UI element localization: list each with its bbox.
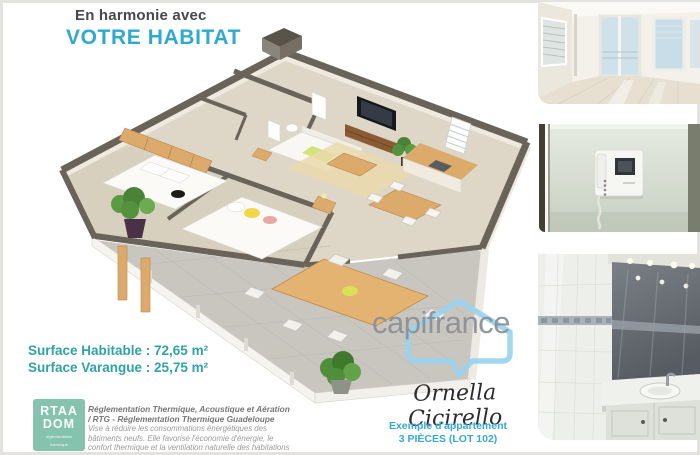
regulation-title2: / RTG - Réglementation Thermique Guadelo… bbox=[88, 414, 324, 424]
watermark-text: capifrance bbox=[372, 305, 510, 340]
tagline-line1: En harmonie avec bbox=[75, 7, 207, 24]
tagline-line2: VOTRE HABITAT bbox=[66, 26, 241, 50]
photo-bathroom-vanity bbox=[538, 254, 700, 440]
caption-line1: Exemple d'appartement bbox=[380, 420, 516, 433]
surface-info: Surface Habitable : 72,65 m² Surface Var… bbox=[28, 342, 208, 376]
apartment-caption: Exemple d'appartement 3 PIÈCES (LOT 102) bbox=[380, 420, 516, 446]
capifrance-logo: capifrance bbox=[360, 290, 560, 385]
rtaa-dom-badge: RTAA DOM réglementation thermique bbox=[33, 399, 85, 451]
regulation-body1: Vise à réduire les consommations énergét… bbox=[88, 424, 324, 434]
regulation-body3: confort thermique et la ventilation natu… bbox=[88, 443, 324, 453]
badge-line2: DOM bbox=[43, 418, 75, 431]
regulation-body2: bâtiments neufs. Elle favorise l'économi… bbox=[88, 434, 324, 444]
photo-video-intercom bbox=[539, 124, 700, 232]
regulation-title1: Réglementation Thermique, Acoustique et … bbox=[88, 404, 324, 414]
badge-subtext2: thermique bbox=[50, 442, 68, 447]
surface-varangue: Surface Varangue : 25,75 m² bbox=[28, 359, 208, 376]
regulation-note: Réglementation Thermique, Acoustique et … bbox=[88, 404, 324, 453]
surface-habitable: Surface Habitable : 72,65 m² bbox=[28, 342, 208, 359]
flyer-page: capifrance bbox=[0, 0, 700, 455]
caption-line2: 3 PIÈCES (LOT 102) bbox=[380, 433, 516, 446]
badge-subtext1: réglementation bbox=[46, 434, 72, 439]
photo-empty-living-room bbox=[538, 2, 700, 104]
